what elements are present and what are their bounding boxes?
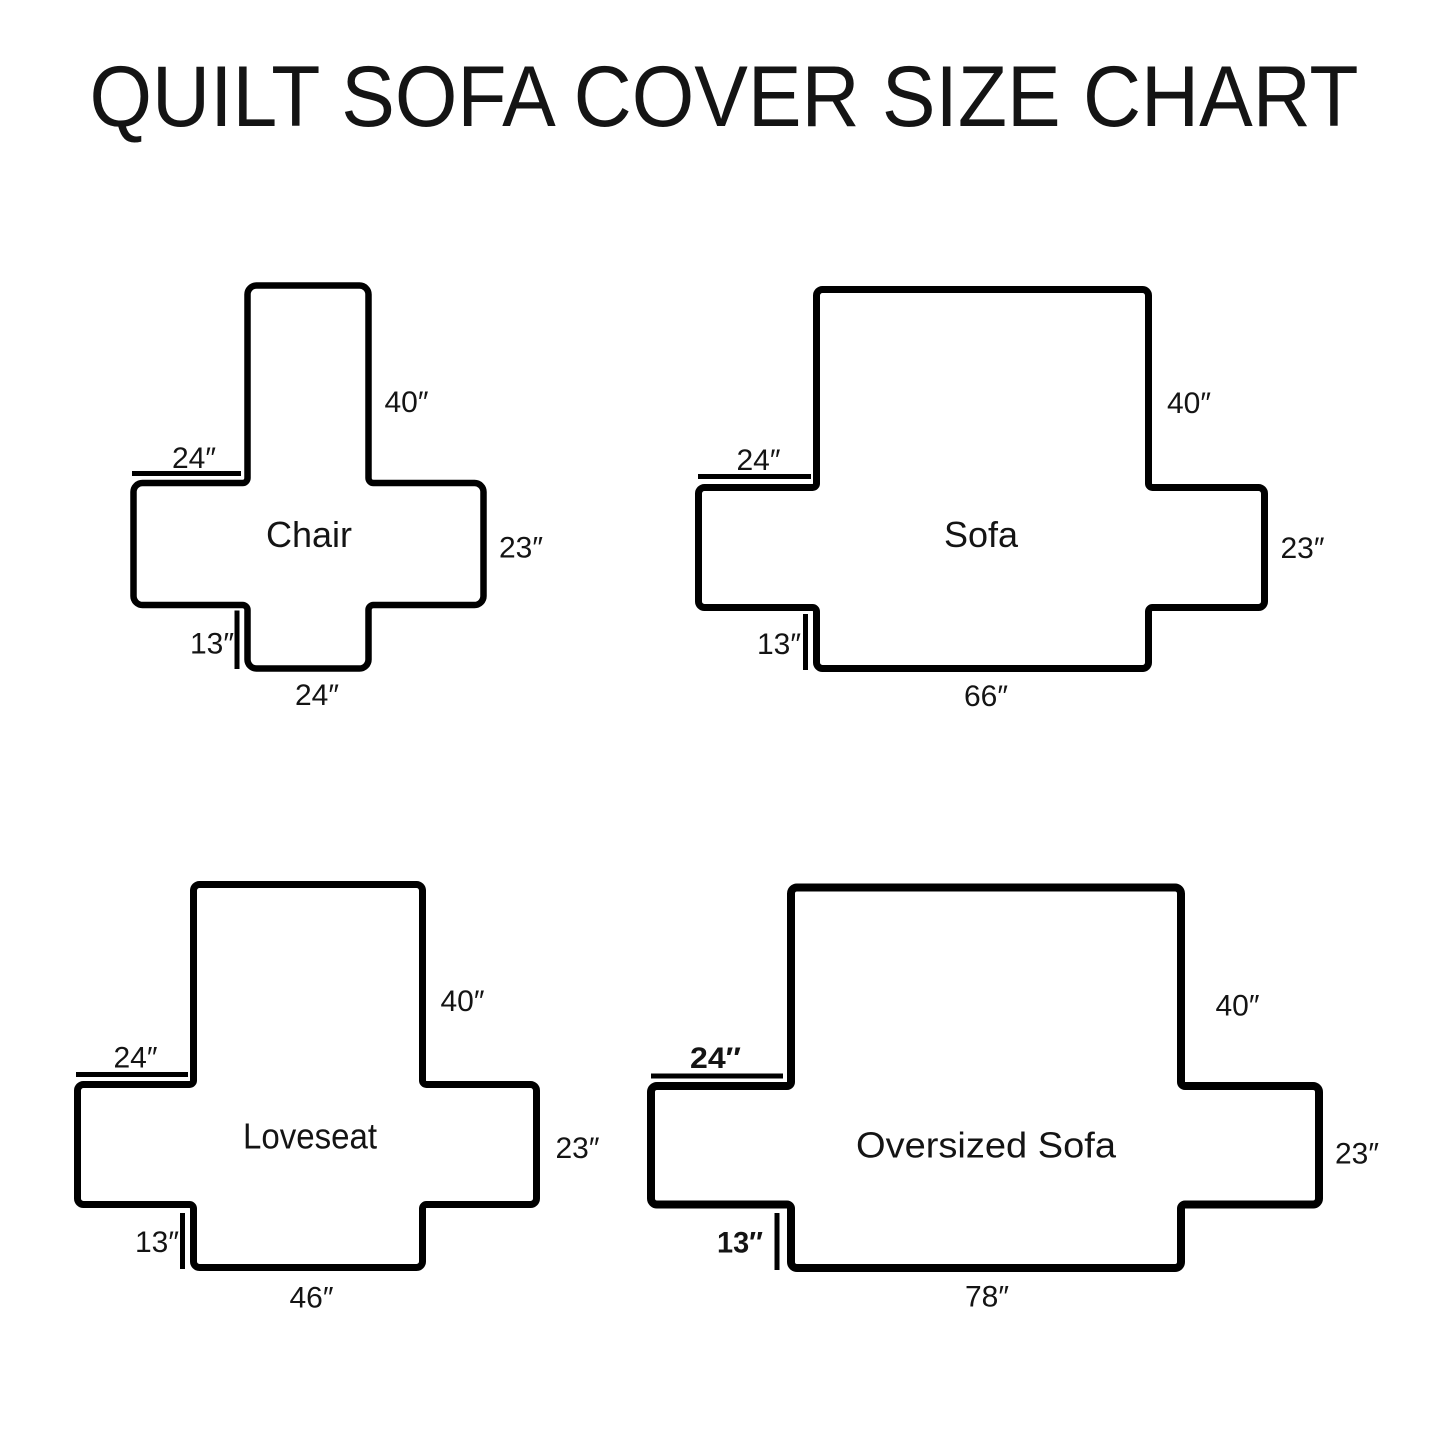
svg-text:40″: 40″ — [1167, 387, 1211, 420]
svg-text:24″: 24″ — [737, 444, 781, 477]
svg-text:40″: 40″ — [441, 985, 485, 1018]
svg-text:Loveseat: Loveseat — [243, 1116, 377, 1157]
svg-text:23″: 23″ — [499, 532, 543, 565]
svg-text:24″: 24″ — [295, 679, 339, 712]
svg-text:13″: 13″ — [717, 1227, 763, 1260]
svg-text:QUILT SOFA COVER SIZE CHART: QUILT SOFA COVER SIZE CHART — [90, 49, 1359, 145]
svg-text:46″: 46″ — [290, 1282, 334, 1315]
svg-text:13″: 13″ — [757, 628, 801, 661]
svg-text:24″: 24″ — [172, 442, 216, 475]
svg-text:66″: 66″ — [964, 680, 1008, 713]
svg-text:40″: 40″ — [385, 386, 429, 419]
svg-text:40″: 40″ — [1216, 990, 1260, 1023]
svg-text:24″: 24″ — [114, 1042, 158, 1075]
svg-text:23″: 23″ — [556, 1132, 600, 1165]
svg-text:13″: 13″ — [190, 628, 234, 661]
svg-text:Sofa: Sofa — [944, 514, 1019, 555]
svg-text:23″: 23″ — [1335, 1138, 1379, 1171]
svg-text:78″: 78″ — [965, 1281, 1009, 1314]
svg-text:Chair: Chair — [266, 514, 352, 555]
svg-text:23″: 23″ — [1281, 532, 1325, 565]
svg-text:Oversized Sofa: Oversized Sofa — [856, 1125, 1117, 1166]
svg-text:13″: 13″ — [135, 1226, 179, 1259]
svg-text:24″: 24″ — [690, 1042, 741, 1075]
